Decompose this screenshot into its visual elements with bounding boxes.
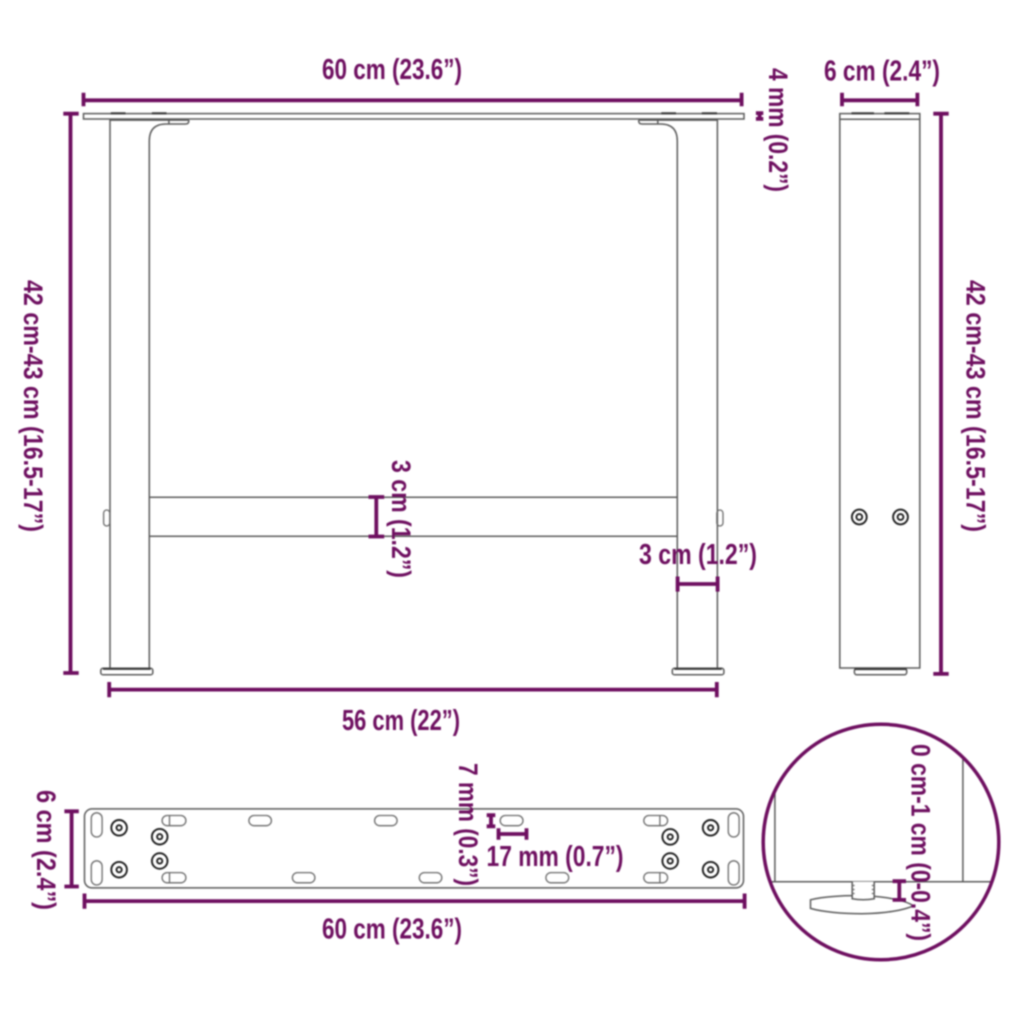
svg-text:4 mm (0.2”): 4 mm (0.2”) — [763, 68, 793, 192]
svg-text:6 cm (2.4”): 6 cm (2.4”) — [31, 790, 61, 910]
svg-text:6 cm (2.4”): 6 cm (2.4”) — [824, 56, 940, 88]
svg-text:42 cm-43 cm (16.5-17”): 42 cm-43 cm (16.5-17”) — [18, 280, 48, 532]
svg-text:7 mm (0.3”): 7 mm (0.3”) — [453, 763, 483, 886]
svg-text:0 cm-1 cm (0-0.4”): 0 cm-1 cm (0-0.4”) — [906, 744, 936, 941]
svg-text:60 cm (23.6”): 60 cm (23.6”) — [322, 914, 462, 946]
svg-text:17 mm (0.7”): 17 mm (0.7”) — [487, 841, 624, 873]
svg-text:3 cm (1.2”): 3 cm (1.2”) — [639, 539, 757, 571]
svg-text:42 cm-43 cm (16.5-17”): 42 cm-43 cm (16.5-17”) — [961, 280, 991, 532]
svg-text:60 cm (23.6”): 60 cm (23.6”) — [322, 54, 462, 86]
svg-text:56 cm (22”): 56 cm (22”) — [342, 705, 460, 737]
svg-text:3 cm (1.2”): 3 cm (1.2”) — [386, 460, 416, 578]
